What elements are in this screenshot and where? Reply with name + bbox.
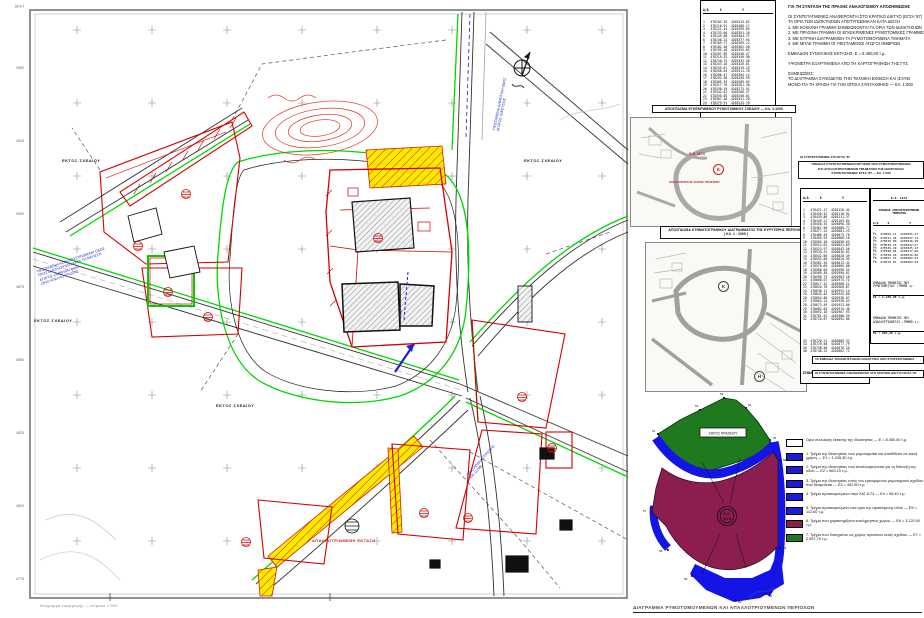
legend-item-label: 7. Τμήμα που διατηρείται ως χώρος πρασίν… (806, 533, 924, 542)
legend-item: 4. Τμήμα προσκυρούμενο στην ΚΜ 1174 — Ε4… (786, 492, 924, 501)
table-body: 1 478102.35 4203415.822 478110.91 420340… (703, 21, 773, 109)
datum-note-box: ΟΙ ΣΥΝΤΕΤΑΓΜΕΝΕΣ ΑΝΑΦΕΡΟΝΤΑΙ ΣΤΟ ΚΡΑΤΙΚΟ… (812, 370, 924, 378)
svg-text:58: 58 (659, 549, 663, 553)
coordinates-table-long: Α/Α Χ Υ 1 478421.17 4203126.442 478430.5… (800, 188, 870, 384)
buildings-layer (128, 198, 572, 572)
diagram-circle-bottom-label: 1174 (723, 517, 731, 521)
note-line: ΜΟΝΟ ΓΙΑ ΤΗ ΧΡΗΣΗ ΓΙΑ ΤΗΝ ΟΠΟΙΑ ΣΥΝΤΑΧΘΗ… (788, 82, 924, 87)
drawing-sheet: ΕΚΤΟΣ ΣΧΕΔΙΟΥ ΕΚΤΟΣ ΣΧΕΔΙΟΥ ΕΚΤΟΣ ΣΧΕΔΙΟ… (0, 0, 924, 618)
side-table-title: Κ.Χ. 1174 (873, 197, 924, 201)
header-line: ΣΥΝΤΕΤΑΓΜΕΝΕΣ ΕΓΣΑ '87 — ΚΛ. 1:500 (801, 172, 921, 177)
note-line: ΓΙΑ ΤΗ ΣΥΝΤΑΞΗ ΤΗΣ ΠΡΑΞΗΣ ΑΝΑΛΟΓΙΣΜΟΥ ΑΠ… (788, 4, 924, 9)
legend-item-label: 4. Τμήμα προσκυρούμενο στην ΚΜ 1174 — Ε4… (806, 492, 906, 496)
diagram-circle-top-label: Κ.Χ. (724, 512, 731, 516)
svg-text:55: 55 (773, 436, 777, 440)
inset2-linework (646, 243, 806, 391)
svg-text:52: 52 (695, 404, 699, 408)
inset1-green-space-label: ΚΟΙΝΟΧΡΗΣΤΟΣ ΧΩΡΟΣ ΠΡΑΣΙΝΟΥ (669, 180, 720, 184)
legend-swatch (786, 534, 803, 542)
svg-text:51: 51 (652, 429, 656, 433)
inset2-block-k: Κ (718, 281, 729, 292)
inset2-title: ΑΠΟΣΠΑΣΜΑ ΚΤΗΜΑΤΟΓΡΑΦΙΚΟΥ ΔΙΑΓΡΑΜΜΑΤΟΣ Τ… (660, 226, 812, 239)
red-hatch-ticks (134, 118, 336, 306)
sheet-title: ΔΙΑΓΡΑΜΜΑ ΡΥΜΟΤΟΜΟΥΜΕΝΩΝ ΚΑΙ ΑΠΑΛΛΟΤΡΙΟΥ… (633, 605, 815, 610)
out-of-plan-label: ΕΚΤΟΣ ΣΧΕΔΙΟΥ (62, 158, 100, 163)
legend-item: 2. Τμήμα της ιδιοκτησίας που απαλλοτριών… (786, 465, 924, 474)
frame-corner-label: (χλμ.) (8, 4, 24, 8)
note-line: ΤΟ ΔΙΑΓΡΑΜΜΑ ΣΥΝΟΔΕΥΕΙ ΤΗΝ ΤΕΧΝΙΚΗ ΕΚΘΕΣ… (788, 76, 924, 81)
svg-text:54: 54 (748, 403, 752, 407)
legend-swatch (786, 466, 803, 474)
side-table-note2: ΕΜΒΑΔΟΝ ΤΜΗΜΑΤΟΣ ΠΟΥ ΑΠΑΛΛΟΤΡΙΩΝΕΤΑΙ (ΤΜ… (873, 317, 924, 324)
table-header: Α/Α Χ Υ (873, 222, 924, 226)
axis-tick-label: 4800 (8, 504, 24, 508)
table-body-2: 33 478720.21 4202885.3234 478729.56 4202… (803, 340, 867, 354)
axis-tick-label: 4950 (8, 66, 24, 70)
side-table-subtitle: ΠΙΝΑΚΑΣ ΑΠΑΛΛΟΤΡΙΟΥΜΕΝΩΝ ΤΜΗΜΑΤΩΝ (873, 209, 924, 215)
side-table-sum1: Ε1 = 1.245,30 τ.μ. (873, 295, 924, 299)
inset1-kx-label: Κ.Χ. 1174 (689, 152, 705, 156)
tables-header-box: ΠΙΝΑΚΑΣ ΣΥΝΤΕΤΑΓΜΕΝΩΝ ΚΟΡΥΦΩΝ ΤΩΝ ΡΥΜΟΤΟ… (798, 161, 924, 179)
svg-text:59: 59 (684, 577, 688, 581)
legend-item: 6. Τμήμα που χαρακτηρίζεται κοινόχρηστος… (786, 519, 924, 528)
sheet-footnote: διάγραμμα εφαρμογής — κλίμακα 1:500 (40, 604, 118, 608)
signature-mark (748, 583, 782, 603)
tables-note: ΟΙ ΣΥΝΤΕΤΑΓΜΕΝΕΣ ΣΤΟ ΕΓΣΑ '87 (800, 155, 850, 159)
legend-item: Όριο συνολικής έκτασης της ιδιοκτησίας —… (786, 438, 924, 447)
legend-swatch (786, 439, 803, 447)
inset2-block-h: Η (754, 371, 765, 382)
axis-tick-label: 4900 (8, 212, 24, 216)
note-line: 2. ΜΕ ΠΡΑΣΙΝΗ ΓΡΑΜΜΗ ΟΙ ΕΓΚΕΚΡΙΜΕΝΕΣ ΡΥΜ… (788, 30, 924, 35)
axis-tick-label: 4825 (8, 431, 24, 435)
note-line: ΥΨΟΜΕΤΡΑ ΕΞΑΡΤΗΜΕΝΑ ΑΠΟ ΤΗ ΧΑΡΤΟΓΡΑΦΗΣΗ … (788, 61, 924, 66)
axis-tick-label: 4850 (8, 358, 24, 362)
legend-item-label: Όριο συνολικής έκτασης της ιδιοκτησίας —… (806, 438, 907, 442)
inset1-linework (631, 118, 791, 226)
svg-text:57: 57 (643, 509, 647, 513)
axis-tick-label: 4775 (8, 577, 24, 581)
table-header: Α/Α Χ Υ (803, 197, 867, 202)
expropriation-table: Κ.Χ. 1174 ΠΙΝΑΚΑΣ ΑΠΑΛΛΟΤΡΙΟΥΜΕΝΩΝ ΤΜΗΜΑ… (870, 188, 924, 344)
legend-item-label: 3. Τμήμα της ιδιοκτησίας εντός του εγκεκ… (806, 479, 924, 488)
table-row: 32 478710.87 4202892.86 (803, 318, 867, 322)
out-of-plan-label: ΕΚΤΟΣ ΣΧΕΔΙΟΥ (34, 318, 72, 323)
legend-swatch (786, 453, 803, 461)
legend-swatch (786, 493, 803, 501)
legend-item-label: 1. Τμήμα της ιδιοκτησίας που ρυμοτομείτα… (806, 452, 924, 461)
legend-swatch (786, 520, 803, 528)
legend: Όριο συνολικής έκτασης της ιδιοκτησίας —… (786, 438, 924, 546)
svg-text:61: 61 (783, 546, 787, 550)
coordinates-table-a: Α/Α Χ Υ 1 478102.35 4203415.822 478110.9… (700, 0, 776, 118)
table-header: Α/Α Χ Υ (703, 9, 773, 14)
area-method-note-box: ΤΑ ΕΜΒΑΔΑ ΥΠΟΛΟΓΙΣΤΗΚΑΝ ΑΝΑΛΥΤΙΚΑ ΑΠΟ ΣΥ… (812, 356, 924, 364)
title-rule (633, 612, 922, 613)
notes-block: ΓΙΑ ΤΗ ΣΥΝΤΑΞΗ ΤΗΣ ΠΡΑΞΗΣ ΑΝΑΛΟΓΙΣΜΟΥ ΑΠ… (788, 4, 924, 87)
north-arrow-icon (512, 52, 530, 88)
inset-map-cadastral: Κ Η (645, 242, 807, 392)
svg-text:60: 60 (738, 600, 742, 604)
out-of-plan-label: ΕΚΤΟΣ ΣΧΕΔΙΟΥ (216, 403, 254, 408)
legend-swatch (786, 507, 803, 515)
expropriated-area-label: ΑΠΑΛΛΟΤΡΙΩΜΕΝΗ ΕΚΤΑΣΗ (312, 538, 376, 543)
out-of-plan-label: ΕΚΤΟΣ ΣΧΕΔΙΟΥ (524, 158, 562, 163)
legend-item: 7. Τμήμα που διατηρείται ως χώρος πρασίν… (786, 533, 924, 542)
legend-item: 1. Τμήμα της ιδιοκτησίας που ρυμοτομείτα… (786, 452, 924, 461)
table-body: 1 478421.17 4203126.442 478430.52 420311… (803, 209, 867, 322)
legend-swatch (786, 480, 803, 488)
table-row: 36 478748.25 4202862.72 (803, 350, 867, 354)
legend-item: 5. Τμήμα προσκυρούμενο στα όρια της υφισ… (786, 506, 924, 515)
legend-item: 3. Τμήμα της ιδιοκτησίας εντός του εγκεκ… (786, 479, 924, 488)
side-table-sum2: Ε2 = 863,15 τ.μ. (873, 331, 924, 335)
svg-text:53: 53 (720, 392, 724, 396)
inset-map-approved-plan: Κ.Χ. 1174 Κ ΚΟΙΝΟΧΡΗΣΤΟΣ ΧΩΡΟΣ ΠΡΑΣΙΝΟΥ (630, 117, 792, 227)
expropriation-diagram: Κ.Χ. 1174 ΧΩΡΟΣ ΠΡΑΣΙΝΟΥ 51 52 53 54 55 … (640, 388, 790, 606)
table-row: Ρ9 478576.87 4202994.99 (873, 261, 924, 264)
legend-item-label: 5. Τμήμα προσκυρούμενο στα όρια της υφισ… (806, 506, 924, 515)
inset2-title-line2: ( ΚΛ. 1 : 1000 ) (663, 232, 809, 236)
axis-tick-label: 4925 (8, 139, 24, 143)
legend-item-label: 2. Τμήμα της ιδιοκτησίας που απαλλοτριών… (806, 465, 924, 474)
inset1-block-letter: Κ (713, 164, 724, 175)
side-table-note1: ΕΜΒΑΔΟΝ ΤΜΗΜΑΤΟΣ ΠΟΥ ΡΥΜΟΤΟΜΕΙΤΑΙ (ΤΜΗΜΑ… (873, 282, 924, 289)
legend-item-label: 6. Τμήμα που χαρακτηρίζεται κοινόχρηστος… (806, 519, 924, 528)
red-parcel-lines (100, 112, 572, 564)
axis-tick-label: 4875 (8, 285, 24, 289)
loop-road-inner (229, 159, 458, 391)
table-body: Ρ1 478502.11 4203055.27Ρ2 478511.46 4203… (873, 233, 924, 264)
diagram-road-label: ΧΩΡΟΣ ΠΡΑΣΙΝΟΥ (709, 431, 739, 435)
inset1-title: ΑΠΟΣΠΑΣΜΑ ΕΓΚΕΚΡΙΜΕΝΟΥ ΡΥΜΟΤΟΜΙΚΟΥ ΣΧΕΔΙ… (652, 105, 796, 113)
